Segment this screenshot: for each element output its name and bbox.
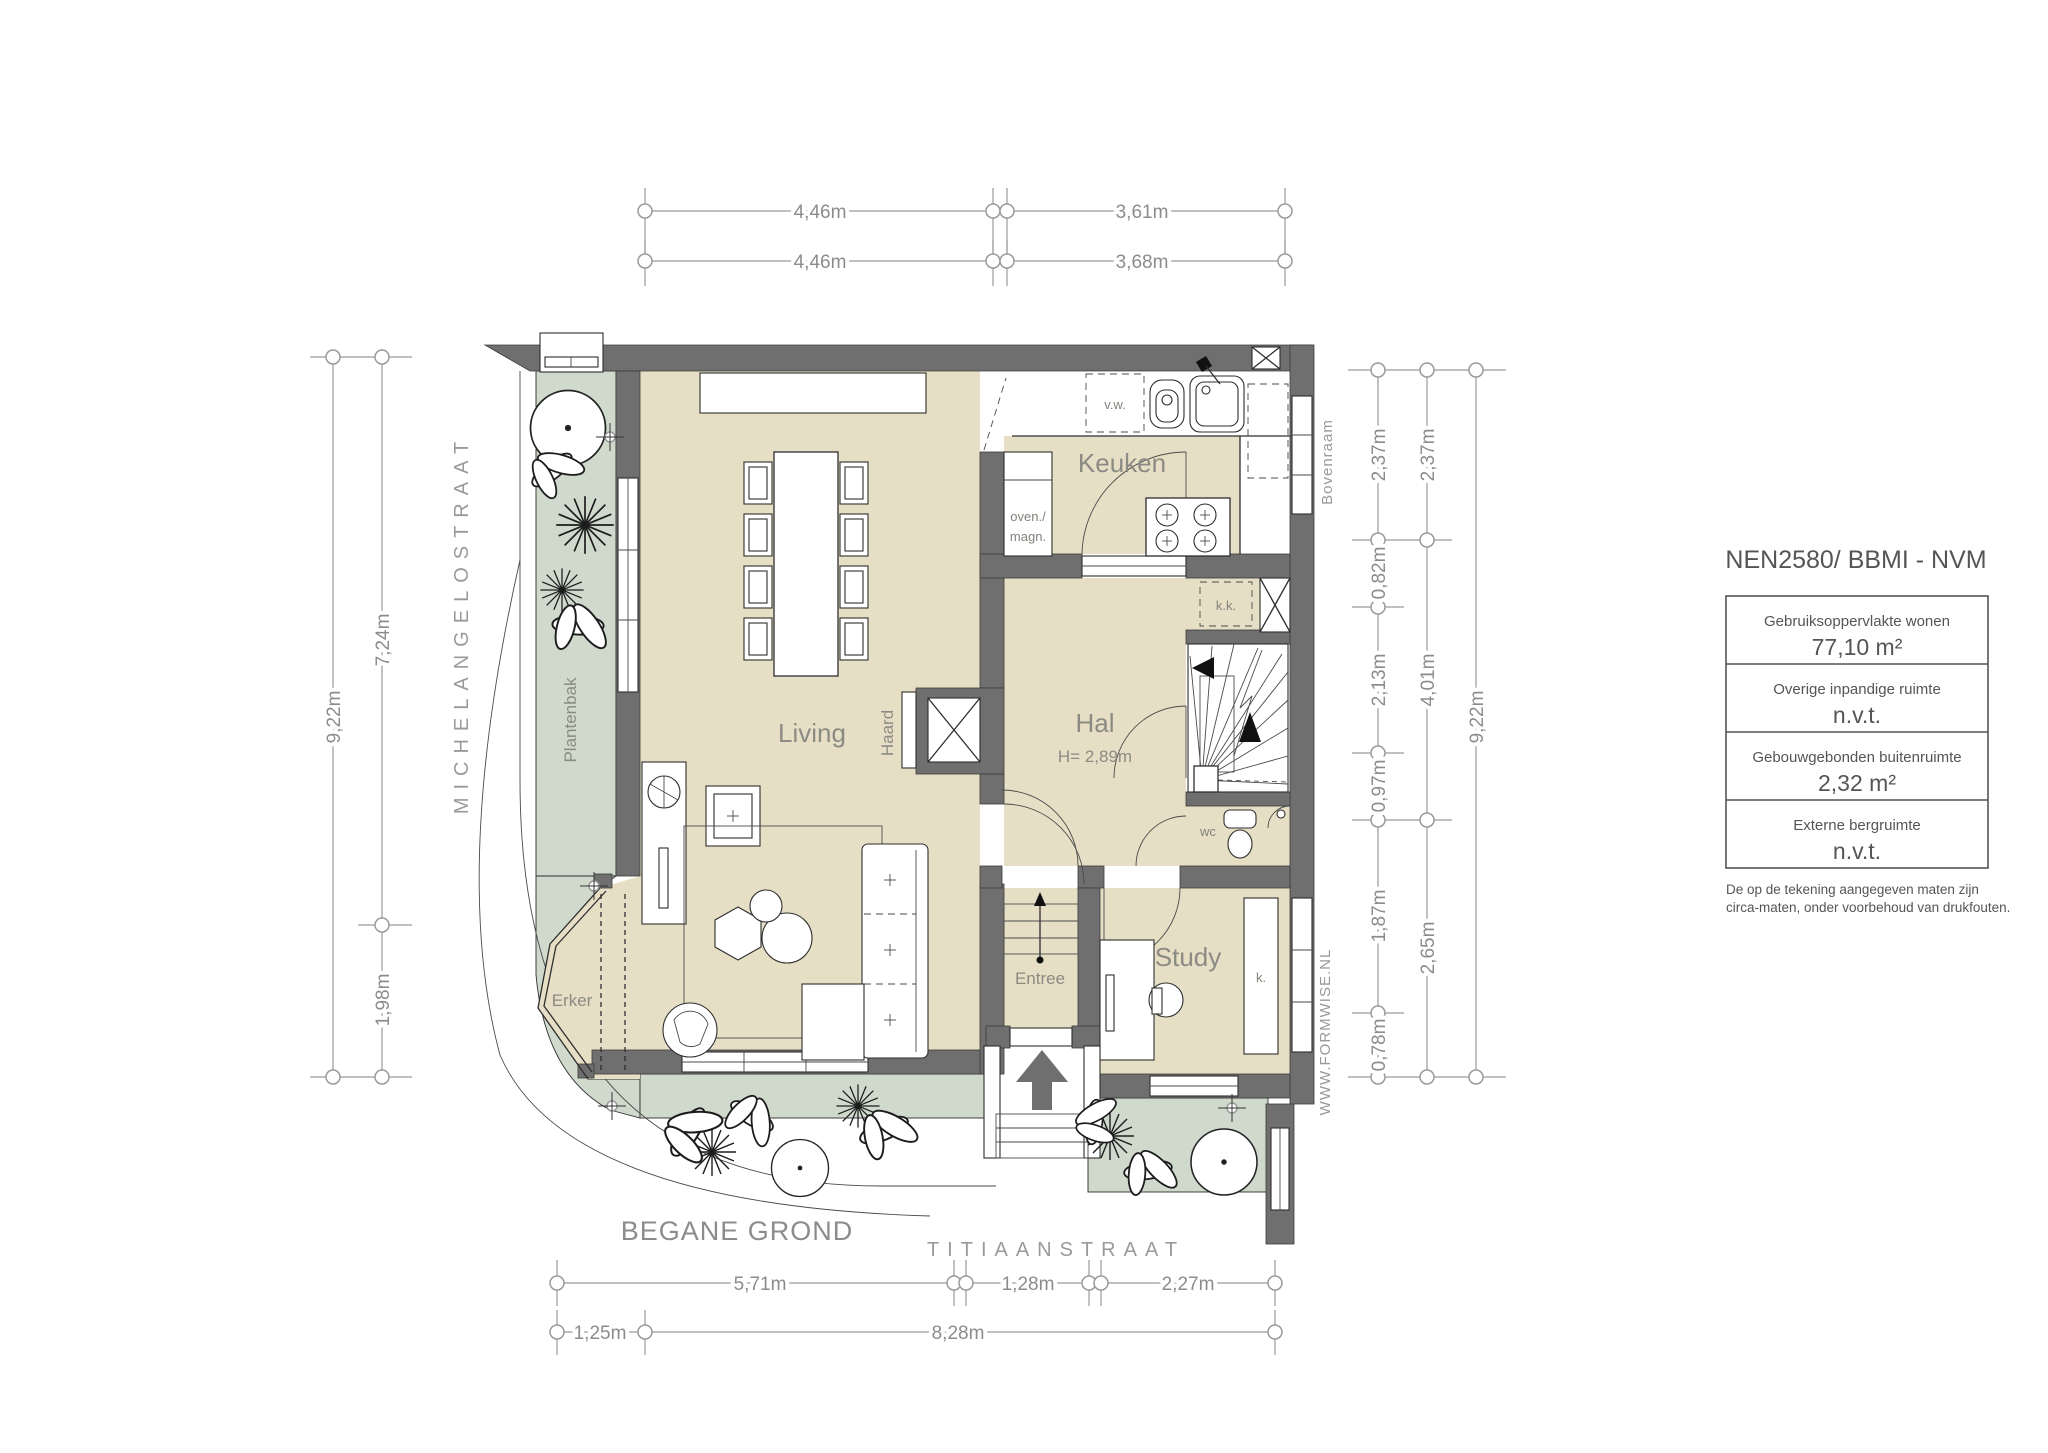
south-wall-seg2 (1078, 866, 1104, 888)
street-label-left: MICHELANGELOSTRAAT (451, 434, 473, 814)
window-stub-gate (1271, 1128, 1289, 1210)
dishwasher-label: v.w. (1104, 397, 1125, 412)
wc-basin-drain (1277, 810, 1285, 818)
info-row-value: 77,10 m² (1812, 634, 1903, 660)
dim-label: 2,37m (1418, 429, 1439, 482)
dim-label: 0,97m (1369, 760, 1390, 813)
dim-top-row1: 4,46m 3,61m (638, 188, 1292, 262)
monitor (1106, 975, 1114, 1031)
info-row-value: 2,32 m² (1818, 770, 1896, 796)
dim-bottom-row2: 1,25m 8,28m (550, 1310, 1282, 1355)
info-row-label: Gebruiksoppervlakte wonen (1764, 613, 1950, 630)
toilet-tank (1224, 810, 1256, 828)
window-study-bottom (1150, 1076, 1238, 1096)
window-left-wall (618, 478, 638, 692)
plantenbak-label: Plantenbak (561, 677, 580, 763)
dim-label: 9,22m (1467, 691, 1488, 744)
fridge-dashed-outline (1248, 384, 1288, 478)
floorplan-drawing: v.w. oven./ magn. (0, 0, 2048, 1448)
round-armchair (663, 1003, 717, 1057)
door-living-keuken-leaf (984, 378, 1006, 450)
disclaimer-line1: De op de tekening aangegeven maten zijn (1726, 882, 1979, 897)
dim-right: 2,37m 0,82m 2,13m 0,97m 1,87m 0,78m 2,37… (1348, 363, 1506, 1084)
sideboard (700, 373, 926, 413)
haard-label: Haard (878, 710, 897, 756)
keuken-wall-right (1186, 554, 1290, 578)
window-study-right (1292, 898, 1312, 1052)
entree-door-stub-right (1072, 1026, 1100, 1048)
info-row-label: Gebouwgebonden buitenruimte (1752, 749, 1961, 766)
porch-steps (996, 1114, 1088, 1158)
toilet-bowl (1228, 830, 1252, 858)
divider-wall-mid (980, 774, 1004, 804)
closet-label: k. (1256, 970, 1266, 985)
study-label: Study (1155, 942, 1222, 972)
dim-label: 3,68m (1116, 252, 1169, 273)
keuken-label: Keuken (1078, 448, 1166, 478)
porch-wall-left (984, 1046, 1000, 1158)
plant-icon (556, 496, 614, 554)
dining-table (774, 452, 838, 676)
info-row-value: n.v.t. (1833, 838, 1881, 864)
oven-closet: oven./ magn. (1004, 452, 1052, 556)
dim-label: 0,82m (1369, 547, 1390, 600)
sink-small (1150, 380, 1184, 428)
info-panel: NEN2580/ BBMI - NVM Gebruiksoppervlakte … (1725, 546, 2010, 915)
disclaimer-line2: circa-maten, onder voorbehoud van drukfo… (1726, 900, 2010, 915)
front-door-sill (1010, 1028, 1072, 1046)
entrance-arrow (1016, 1050, 1068, 1110)
dim-label: 1,98m (373, 974, 394, 1027)
dim-label: 1,87m (1369, 890, 1390, 943)
wc-label: wc (1199, 824, 1216, 839)
dim-label: 0,78m (1369, 1019, 1390, 1072)
dim-label: 8,28m (932, 1323, 985, 1344)
hal-height-label: H= 2,89m (1058, 747, 1132, 766)
info-row-value: n.v.t. (1833, 702, 1881, 728)
dim-label: 5,71m (734, 1274, 787, 1295)
floor-title: BEGANE GROND (621, 1216, 854, 1246)
floorplan-page: v.w. oven./ magn. (0, 0, 2048, 1448)
kk-label: k.k. (1216, 598, 1236, 613)
dim-bottom-row1: 5,71m 1,28m 2,27m (550, 1260, 1282, 1306)
dim-top-row2: 4,46m 3,68m (638, 240, 1292, 286)
dim-label: 7,24m (373, 614, 394, 667)
entree-study-wall (1078, 888, 1100, 1028)
entree-door-stub-left (986, 1026, 1010, 1048)
oven-label-2: magn. (1010, 529, 1046, 544)
south-wall-seg1 (980, 866, 1002, 888)
keuken-wall-left (980, 554, 1082, 578)
side-table (802, 984, 864, 1060)
wall-cabinet (642, 762, 686, 924)
south-wall-seg3 (1180, 866, 1290, 888)
dim-label: 1,28m (1002, 1274, 1055, 1295)
window-bovenraam (1292, 396, 1312, 514)
hal-label: Hal (1075, 708, 1114, 738)
tree-icon (1191, 1129, 1257, 1195)
dim-label: 3,61m (1116, 202, 1169, 223)
dim-left: 9,22m 7,24m 1,98m (310, 350, 412, 1084)
fireplace (902, 688, 1004, 774)
bovenraam-label: Bovenraam (1319, 419, 1336, 505)
street-label-bottom: TITIAANSTRAAT (927, 1239, 1185, 1261)
oven-label-1: oven./ (1010, 509, 1046, 524)
living-label: Living (778, 718, 846, 748)
dim-label: 4,01m (1418, 654, 1439, 707)
dim-label: 4,46m (794, 252, 847, 273)
dim-label: 9,22m (324, 691, 345, 744)
erker-label: Erker (552, 991, 593, 1010)
info-row-label: Externe bergruimte (1793, 817, 1921, 834)
info-panel-title: NEN2580/ BBMI - NVM (1725, 546, 1986, 574)
staircase (1188, 644, 1288, 792)
tree-icon (772, 1140, 829, 1197)
dim-label: 2,27m (1162, 1274, 1215, 1295)
sofa (862, 844, 928, 1058)
stair-newel (1194, 766, 1218, 792)
dim-label: 2,65m (1418, 922, 1439, 975)
window-corner-x (1252, 347, 1280, 369)
stove (1146, 498, 1230, 556)
dim-label: 4,46m (794, 202, 847, 223)
dim-label: 2,13m (1369, 654, 1390, 707)
stairs-wc-wall (1186, 792, 1290, 806)
entree-label: Entree (1015, 969, 1065, 988)
dim-label: 1,25m (574, 1323, 627, 1344)
armchair-square (706, 786, 760, 846)
window-top-wall (540, 333, 603, 372)
info-row-label: Overige inpandige ruimte (1773, 681, 1941, 698)
watermark: WWW.FORMWISE.NL (1317, 949, 1334, 1116)
outer-wall-top (485, 345, 1312, 371)
dim-label: 2,37m (1369, 429, 1390, 482)
